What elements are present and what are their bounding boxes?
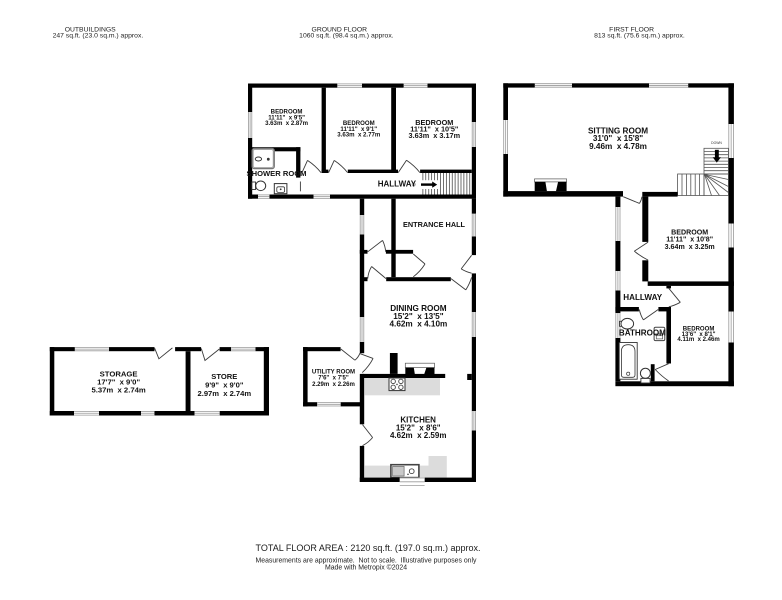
svg-text:DOWN: DOWN (711, 141, 722, 145)
svg-text:4.62m x 2.59m: 4.62m x 2.59m (390, 431, 446, 440)
svg-text:UTILITY ROOM: UTILITY ROOM (312, 370, 355, 376)
svg-text:Measurements are approximate.: Measurements are approximate. Not to sca… (256, 557, 478, 564)
svg-text:2.29m x 2.26m: 2.29m x 2.26m (312, 382, 355, 388)
svg-text:HALLWAY: HALLWAY (623, 293, 662, 302)
svg-text:3.63m x 3.17m: 3.63m x 3.17m (409, 131, 461, 140)
svg-text:9.46m x 4.78m: 9.46m x 4.78m (589, 142, 647, 151)
svg-text:1060 sq.ft. (98.4 sq.m.) appro: 1060 sq.ft. (98.4 sq.m.) approx. (299, 32, 394, 39)
svg-text:3.64m x 3.25m: 3.64m x 3.25m (665, 243, 715, 251)
svg-text:2.97m x 2.74m: 2.97m x 2.74m (197, 389, 251, 398)
svg-text:3.63m x 2.87m: 3.63m x 2.87m (265, 120, 309, 127)
svg-text:BATHROOM: BATHROOM (619, 328, 666, 337)
svg-text:4.62m x 4.10m: 4.62m x 4.10m (389, 319, 447, 328)
svg-text:9'9" x 9'0": 9'9" x 9'0" (205, 380, 244, 389)
svg-text:ENTRANCE HALL: ENTRANCE HALL (403, 220, 466, 229)
svg-text:813 sq.ft. (75.6 sq.m.) approx: 813 sq.ft. (75.6 sq.m.) approx. (594, 32, 685, 39)
svg-text:247 sq.ft. (23.0 sq.m.) approx: 247 sq.ft. (23.0 sq.m.) approx. (53, 32, 144, 39)
svg-text:7'6" x 7'5": 7'6" x 7'5" (318, 376, 349, 382)
svg-text:5.37m x 2.74m: 5.37m x 2.74m (91, 386, 145, 395)
svg-text:SHOWER ROOM: SHOWER ROOM (247, 169, 307, 178)
svg-text:Made with Metropix ©2024: Made with Metropix ©2024 (325, 564, 407, 572)
svg-text:STORE: STORE (211, 372, 237, 381)
svg-text:TOTAL FLOOR AREA : 2120 sq.ft.: TOTAL FLOOR AREA : 2120 sq.ft. (197.0 sq… (256, 543, 481, 553)
svg-text:HALLWAY: HALLWAY (378, 180, 417, 189)
svg-text:3.63m x 2.77m: 3.63m x 2.77m (337, 132, 381, 139)
svg-text:4.11m x 2.46m: 4.11m x 2.46m (677, 337, 719, 343)
